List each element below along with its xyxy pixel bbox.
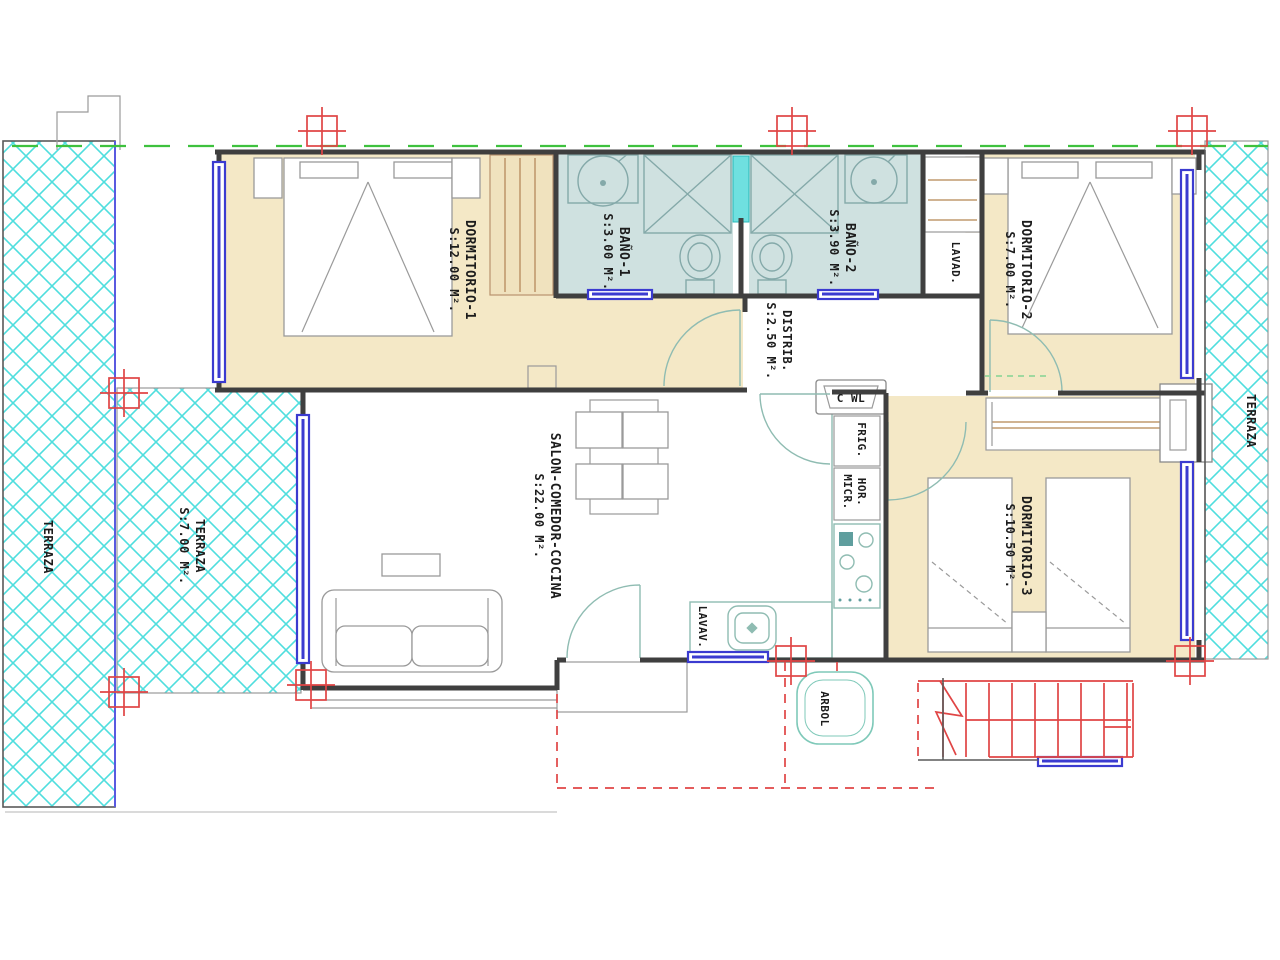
chair [576,464,622,499]
label-frigorifico: FRIG. [855,422,868,458]
stairs-and-patio [557,662,1133,788]
sofa [322,590,502,672]
coffee-table [382,554,440,576]
floor-plan-drawing: DORMITORIO-1 S:12.00 M². BAÑO-1 S:3.00 M… [0,0,1280,960]
window-dormitorio1 [213,162,225,382]
room-name: TERRAZA [41,520,55,574]
room-name: DISTRIB. [780,310,794,372]
door-bano2-sliding [818,290,878,299]
label-terraza-right: TERRAZA [1244,394,1258,448]
shelves-lavadero [925,157,980,232]
room-area: S:22.00 M². [532,474,546,559]
column-marker [768,107,816,155]
terrace-left [3,141,115,807]
window-dormitorio2 [1181,170,1193,378]
nightstand [254,158,282,198]
room-area: S:7.00 M². [177,507,191,584]
label-lavadero: LAVAD. [949,242,962,285]
label-cupboard: C WL [837,392,866,405]
tree-label: ARBOL [818,691,831,727]
window-kitchen [688,652,768,662]
room-name: TERRAZA [1244,394,1258,448]
bath-window-glass [733,156,749,222]
nightstand [1012,612,1046,652]
window-stairs [1038,757,1122,766]
window-salon [297,415,309,663]
chair [623,412,668,448]
room-name: SALON-COMEDOR-COCINA [547,433,562,600]
room-name: BAÑO-1 [616,227,632,277]
room-name: DORMITORIO-2 [1018,220,1033,320]
chair [576,412,622,448]
fixture-label: FRIG. [855,422,868,458]
closet-dormitorio3 [986,398,1178,450]
nightstand [984,158,1008,194]
label-arbol: ARBOL [818,691,831,727]
column-marker [298,107,346,155]
room-area: S:7.00 M². [1003,231,1017,308]
room-name: DORMITORIO-1 [462,220,477,320]
room-area: S:2.50 M². [764,302,778,379]
window-dormitorio3 [1181,462,1193,640]
chair [623,464,668,499]
room-dormitorio1-hall [553,298,743,388]
fixture-label: MICR. [841,474,854,510]
stair-break-line [936,681,962,755]
room-area: S:3.90 M². [827,209,841,286]
room-area: S:10.50 M². [1003,504,1017,589]
room-name: BAÑO-2 [842,223,858,273]
door-bano1-sliding [588,290,652,299]
room-name: TERRAZA [193,519,207,573]
staircase [918,678,1133,760]
fixture-label: HOR. [855,478,868,507]
room-area: S:3.00 M². [601,213,615,290]
floor-plan-page: DORMITORIO-1 S:12.00 M². BAÑO-1 S:3.00 M… [0,0,1280,960]
bed-dormitorio1 [254,158,480,336]
label-terraza-left: TERRAZA [41,520,55,574]
nightstand [452,158,480,198]
terrace-front [117,388,301,693]
fixture-label: LAVAD. [949,242,962,285]
room-area: S:12.00 M². [447,228,461,313]
label-horno-micro: HOR. MICR. [841,474,868,510]
room-name: DORMITORIO-3 [1018,496,1033,596]
tree [797,672,873,744]
label-lavavajillas: LAVAV. [696,606,709,649]
fixture-label: LAVAV. [696,606,709,649]
